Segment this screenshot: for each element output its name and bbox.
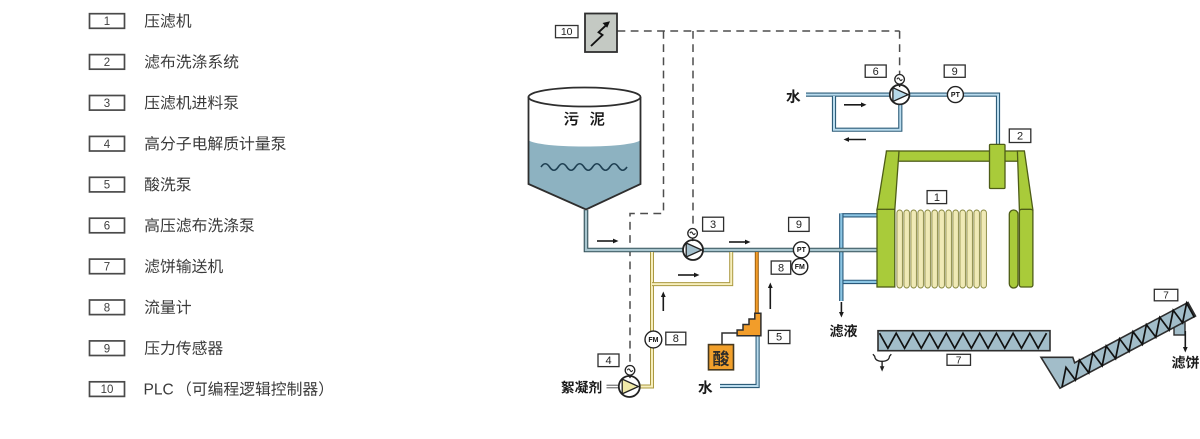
svg-text:8: 8 — [673, 333, 679, 345]
svg-text:9: 9 — [952, 66, 958, 78]
svg-text:2: 2 — [104, 57, 110, 69]
svg-text:PT: PT — [797, 247, 807, 254]
svg-text:8: 8 — [104, 302, 110, 314]
svg-text:8: 8 — [778, 262, 784, 274]
svg-text:3: 3 — [710, 219, 716, 231]
svg-text:4: 4 — [605, 355, 611, 367]
svg-text:7: 7 — [956, 355, 962, 366]
svg-text:1: 1 — [934, 192, 940, 204]
svg-text:2: 2 — [1017, 130, 1023, 142]
svg-text:6: 6 — [873, 66, 879, 78]
svg-text:5: 5 — [104, 180, 110, 192]
svg-text:10: 10 — [561, 26, 573, 38]
svg-text:4: 4 — [104, 139, 111, 151]
svg-text:7: 7 — [1163, 291, 1169, 302]
svg-text:7: 7 — [104, 262, 110, 274]
svg-text:9: 9 — [104, 343, 110, 355]
svg-text:PLC: PLC — [144, 381, 174, 398]
svg-text:PT: PT — [951, 92, 961, 99]
svg-text:3: 3 — [104, 98, 110, 110]
svg-text:1: 1 — [104, 16, 110, 28]
svg-text:FM: FM — [795, 264, 805, 271]
svg-text:6: 6 — [104, 221, 110, 233]
svg-text:9: 9 — [796, 219, 802, 231]
svg-text:FM: FM — [648, 337, 658, 344]
svg-text:10: 10 — [101, 384, 114, 396]
svg-text:5: 5 — [776, 332, 782, 344]
